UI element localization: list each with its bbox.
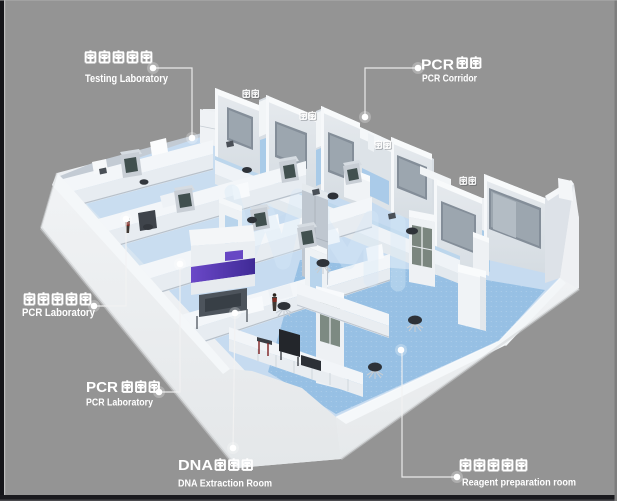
svg-text:PCR Laboratory: PCR Laboratory [86, 397, 153, 409]
svg-text:Reagent preparation room: Reagent preparation room [462, 477, 576, 489]
svg-text:DNA Extraction Room: DNA Extraction Room [178, 478, 272, 490]
svg-text:Testing Laboratory: Testing Laboratory [85, 73, 169, 85]
svg-text:PCR Laboratory: PCR Laboratory [22, 307, 96, 319]
svg-text:PCR: PCR [86, 380, 119, 396]
svg-text:PCR Corridor: PCR Corridor [422, 73, 477, 85]
svg-text:PCR: PCR [421, 57, 454, 74]
svg-text:DNA: DNA [178, 458, 214, 474]
